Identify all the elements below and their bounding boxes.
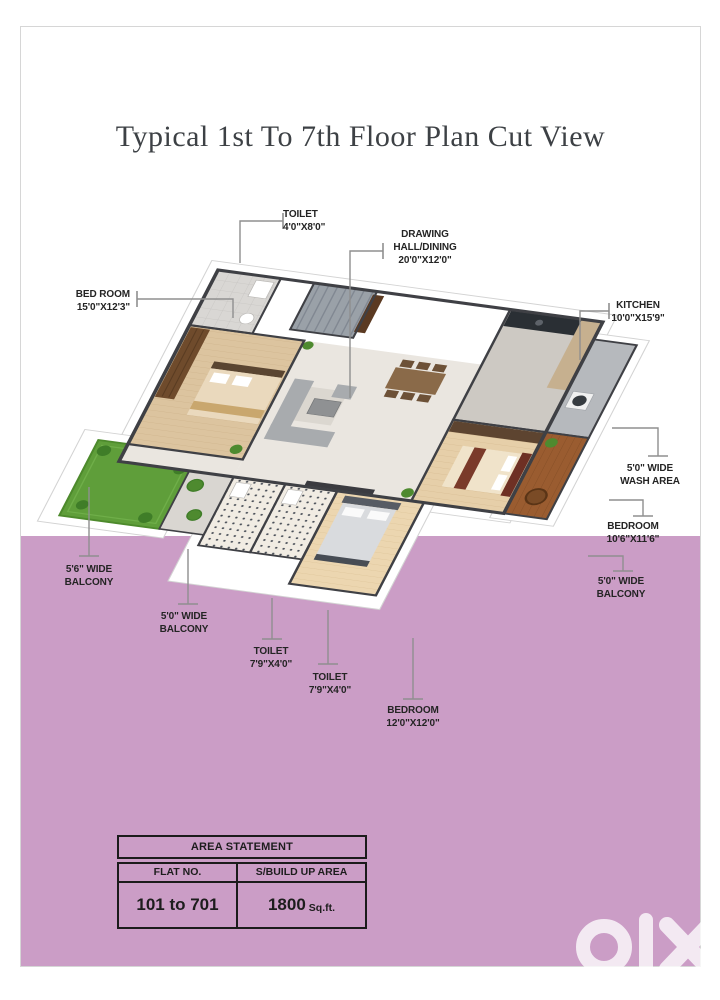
label-line: BALCONY [160, 623, 209, 636]
label-kitchen: KITCHEN 10'0"X15'9" [611, 299, 664, 325]
label-line: 10'0"X15'9" [611, 312, 664, 325]
label-line: 15'0"X12'3" [76, 301, 130, 314]
label-line: BEDROOM [386, 704, 439, 717]
label-line: TOILET [283, 208, 325, 221]
label-toilet-b2: TOILET 7'9"X4'0" [309, 671, 351, 697]
floor-plan-render [0, 0, 720, 1000]
label-line: DRAWING [393, 228, 456, 241]
label-balcony-left2: 5'0" WIDE BALCONY [160, 610, 209, 636]
label-toilet-top: TOILET 4'0"X8'0" [283, 208, 325, 234]
label-line: WASH AREA [620, 475, 680, 488]
label-line: 5'0" WIDE [597, 575, 646, 588]
label-line: BALCONY [597, 588, 646, 601]
label-line: 4'0"X8'0" [283, 221, 325, 234]
label-line: 10'6"X11'6" [607, 533, 660, 546]
label-drawing-hall: DRAWING HALL/DINING 20'0"X12'0" [393, 228, 456, 267]
label-line: BEDROOM [607, 520, 660, 533]
label-line: 5'0" WIDE [160, 610, 209, 623]
label-line: 12'0"X12'0" [386, 717, 439, 730]
label-line: BED ROOM [76, 288, 130, 301]
label-wash-area: 5'0" WIDE WASH AREA [620, 462, 680, 488]
label-bedroom-bottom: BEDROOM 12'0"X12'0" [386, 704, 439, 730]
label-line: KITCHEN [611, 299, 664, 312]
label-line: TOILET [250, 645, 292, 658]
label-line: TOILET [309, 671, 351, 684]
label-bedroom-left: BED ROOM 15'0"X12'3" [76, 288, 130, 314]
label-toilet-b1: TOILET 7'9"X4'0" [250, 645, 292, 671]
label-line: 7'9"X4'0" [250, 658, 292, 671]
label-line: 5'0" WIDE [620, 462, 680, 475]
label-line: 20'0"X12'0" [393, 254, 456, 267]
label-balcony-right: 5'0" WIDE BALCONY [597, 575, 646, 601]
screenshot-canvas: Typical 1st To 7th Floor Plan Cut View A… [0, 0, 720, 1000]
label-line: 5'6" WIDE [65, 563, 114, 576]
label-line: HALL/DINING [393, 241, 456, 254]
label-line: 7'9"X4'0" [309, 684, 351, 697]
label-bedroom-right: BEDROOM 10'6"X11'6" [607, 520, 660, 546]
label-balcony-left: 5'6" WIDE BALCONY [65, 563, 114, 589]
label-line: BALCONY [65, 576, 114, 589]
